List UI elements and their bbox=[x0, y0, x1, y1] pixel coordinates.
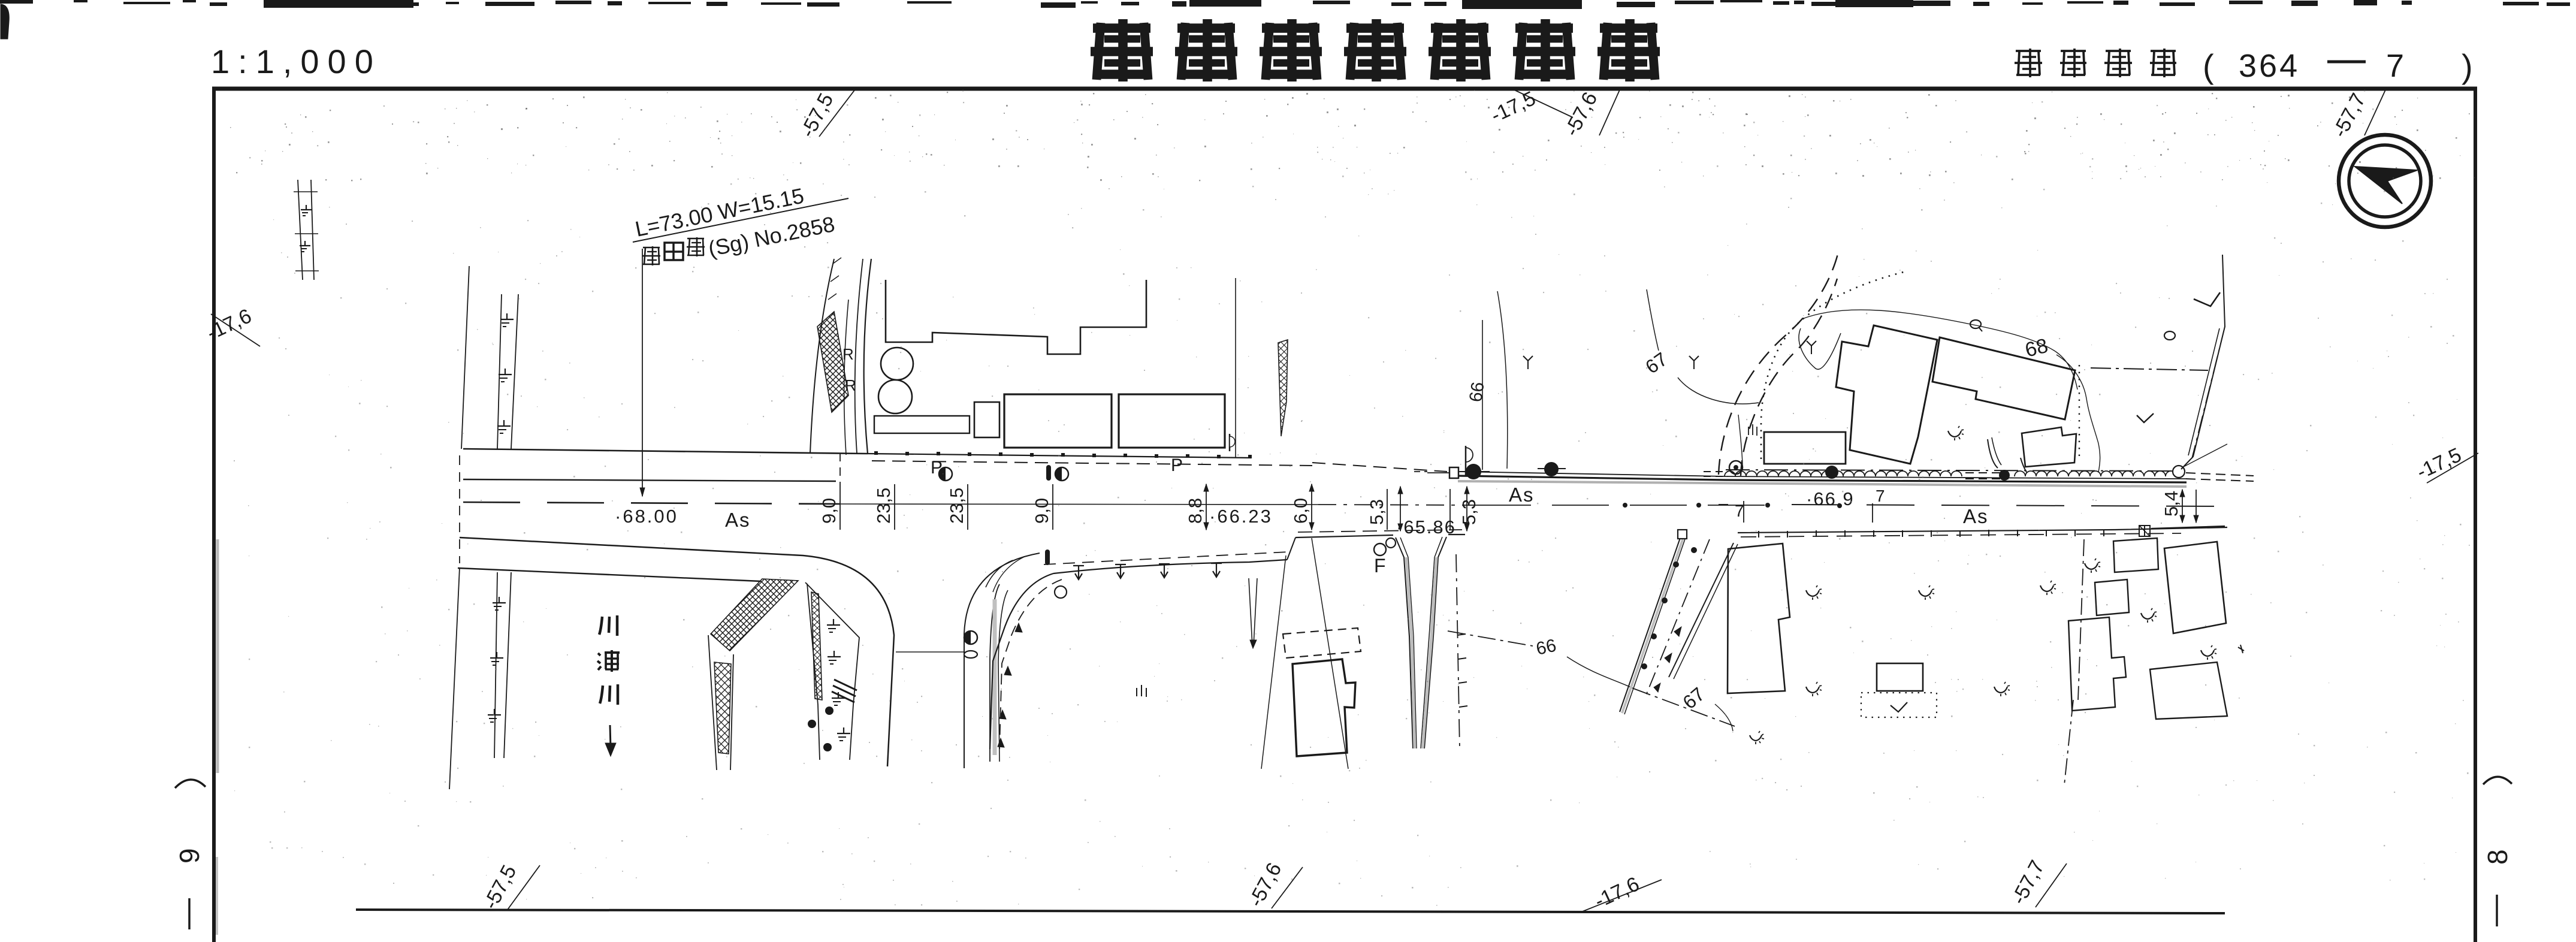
svg-text:9,0: 9,0 bbox=[819, 498, 839, 524]
svg-text:8: 8 bbox=[2482, 849, 2513, 865]
svg-text:R: R bbox=[842, 345, 854, 363]
svg-text:5,3: 5,3 bbox=[1366, 499, 1387, 525]
svg-text:23,5: 23,5 bbox=[873, 488, 894, 524]
svg-text:): ) bbox=[2462, 47, 2473, 85]
svg-text:23,5: 23,5 bbox=[946, 488, 967, 524]
svg-text:1:1,000: 1:1,000 bbox=[211, 43, 382, 80]
svg-text:·66.23: ·66.23 bbox=[1209, 506, 1273, 527]
svg-text:7: 7 bbox=[1735, 502, 1744, 520]
svg-text:R: R bbox=[845, 376, 856, 394]
svg-text:P: P bbox=[1171, 455, 1183, 475]
svg-text:As: As bbox=[725, 509, 751, 531]
svg-text:5,4: 5,4 bbox=[2161, 491, 2182, 517]
svg-text:·66.9: ·66.9 bbox=[1806, 488, 1855, 509]
svg-text:364: 364 bbox=[2239, 48, 2300, 84]
svg-text:9: 9 bbox=[174, 848, 205, 864]
svg-text:·68.00: ·68.00 bbox=[615, 506, 678, 527]
svg-text:9,0: 9,0 bbox=[1031, 498, 1052, 524]
svg-text:As: As bbox=[1963, 505, 1989, 527]
svg-text:66: 66 bbox=[1466, 381, 1488, 403]
svg-text:(: ( bbox=[2203, 47, 2214, 85]
svg-text:6,0: 6,0 bbox=[1290, 498, 1311, 524]
svg-text:As: As bbox=[1509, 484, 1535, 506]
svg-text:F: F bbox=[1374, 555, 1386, 576]
svg-text:7: 7 bbox=[2386, 48, 2404, 84]
svg-text:66: 66 bbox=[1535, 636, 1559, 659]
svg-text:8,8: 8,8 bbox=[1185, 498, 1206, 524]
svg-text:7: 7 bbox=[1876, 487, 1885, 505]
svg-text:5,3: 5,3 bbox=[1458, 499, 1479, 525]
svg-text:·65.86: ·65.86 bbox=[1396, 517, 1456, 538]
